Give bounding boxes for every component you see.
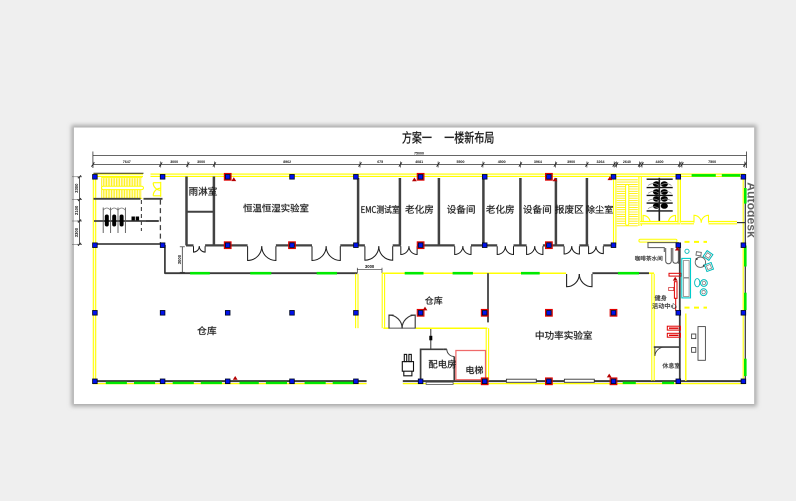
- svg-text:3300: 3300: [74, 183, 79, 193]
- svg-text:4400: 4400: [656, 160, 664, 164]
- svg-text:3964: 3964: [534, 160, 542, 164]
- svg-text:3900: 3900: [567, 160, 575, 164]
- svg-text:3300: 3300: [74, 227, 79, 237]
- svg-text:3000: 3000: [177, 254, 182, 264]
- svg-text:5500: 5500: [457, 160, 465, 164]
- svg-text:8962: 8962: [283, 160, 291, 164]
- svg-text:7500: 7500: [708, 160, 716, 164]
- svg-text:2640: 2640: [623, 160, 631, 164]
- svg-text:3000: 3000: [365, 264, 375, 269]
- svg-text:3000: 3000: [170, 160, 178, 164]
- svg-text:4500: 4500: [498, 160, 506, 164]
- svg-text:4081: 4081: [415, 160, 423, 164]
- svg-text:675: 675: [377, 160, 383, 164]
- svg-text:7647: 7647: [123, 160, 131, 164]
- svg-text:75000: 75000: [414, 151, 424, 155]
- svg-text:3264: 3264: [597, 160, 605, 164]
- svg-text:2100: 2100: [74, 205, 79, 215]
- svg-text:3000: 3000: [197, 160, 205, 164]
